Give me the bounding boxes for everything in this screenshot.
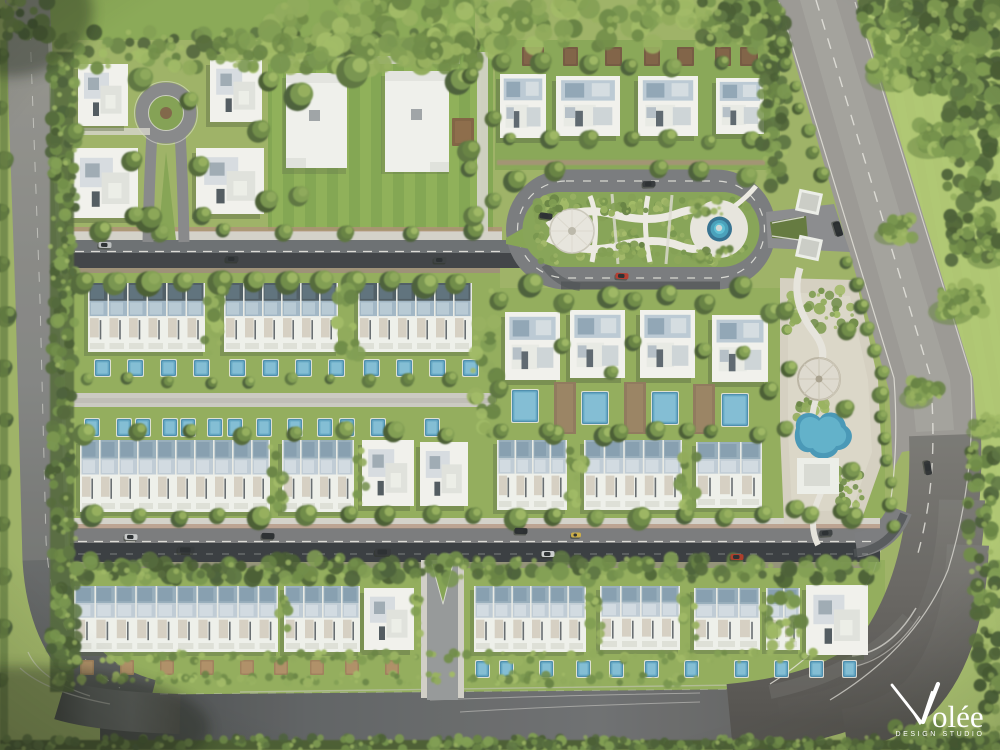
svg-text:DESIGN STUDIO: DESIGN STUDIO <box>895 731 984 738</box>
svg-text:olée: olée <box>932 699 984 734</box>
